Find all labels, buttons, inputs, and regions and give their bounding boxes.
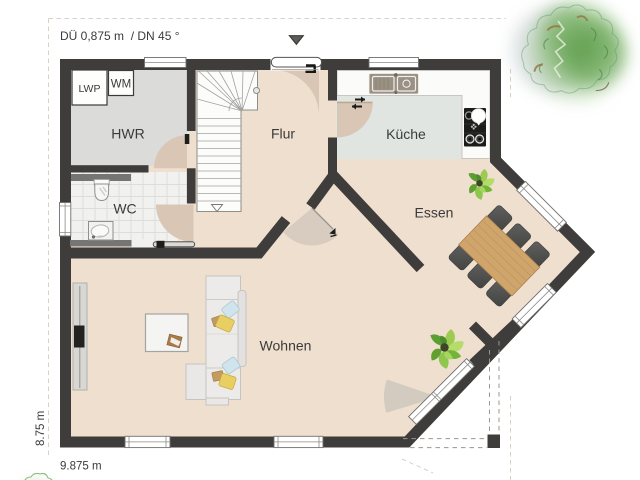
svg-text:DÜ 0,875 m / DN 45 °: DÜ 0,875 m / DN 45 ° xyxy=(60,29,180,43)
svg-text:HWR: HWR xyxy=(111,126,144,142)
svg-text:9.875 m: 9.875 m xyxy=(60,461,102,473)
svg-text:8.75 m: 8.75 m xyxy=(35,411,47,446)
svg-text:LWP: LWP xyxy=(79,83,101,95)
svg-text:WM: WM xyxy=(111,79,131,91)
svg-text:Flur: Flur xyxy=(271,126,295,142)
svg-text:WC: WC xyxy=(113,201,136,217)
svg-text:Wohnen: Wohnen xyxy=(260,338,312,354)
svg-text:Essen: Essen xyxy=(415,205,454,221)
svg-text:Küche: Küche xyxy=(386,126,426,142)
